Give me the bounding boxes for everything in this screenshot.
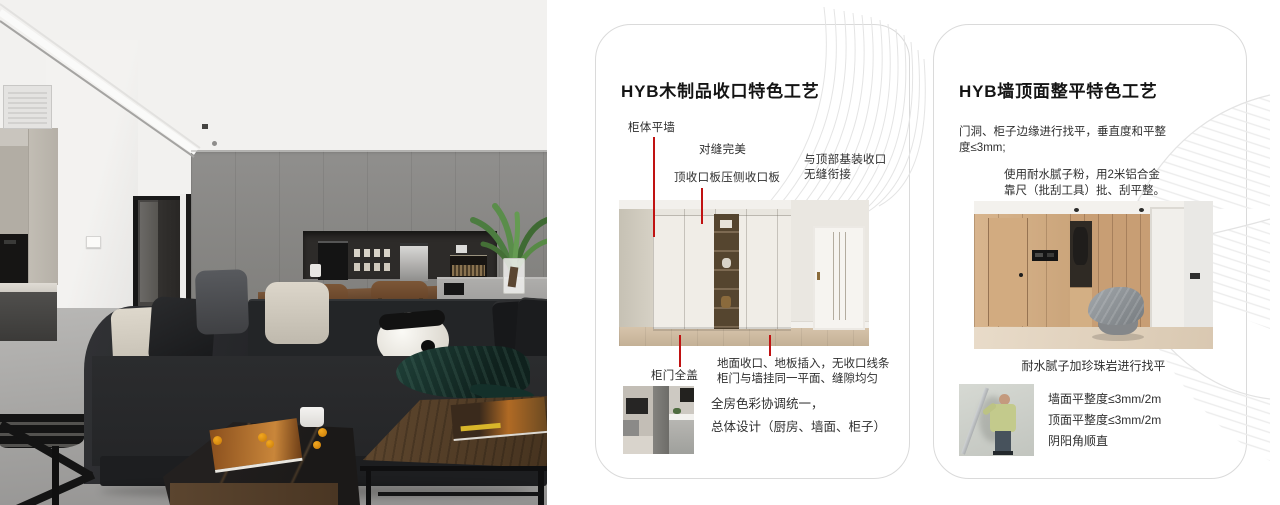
shelves [714, 214, 739, 329]
table-metal-leg [538, 468, 544, 505]
para2-line2: 靠尺（批刮工具）批、刮平整。 [1004, 183, 1165, 199]
render-wardrobe [653, 209, 791, 329]
thumb-dark-appliance [680, 388, 694, 402]
white-mug [310, 264, 321, 277]
leader-line-top-panel [701, 188, 703, 224]
door-handle-gold [817, 272, 820, 280]
callout-cabinet-flush-wall: 柜体平墙 [628, 121, 675, 136]
table-metal-leg [366, 470, 371, 505]
orange-fruit [213, 436, 222, 445]
glass-door-handle [1190, 273, 1200, 279]
open-shelf-unit [714, 214, 739, 329]
wood-wall-left [974, 214, 1070, 329]
thumb-gray-column [653, 386, 669, 454]
thumb-sofa [623, 420, 639, 436]
thumb-tv [626, 398, 648, 414]
door-handle-dot [1019, 273, 1023, 277]
card2-thumbnail-photo [959, 384, 1034, 456]
light-switch [86, 236, 101, 248]
ceiling-vent [3, 85, 52, 129]
callout-full-overlay-door: 柜门全盖 [651, 369, 698, 384]
orange-fruit [258, 433, 267, 442]
note-floor-closeout: 地面收口、地板插入，无收口线条 柜门与墙挂同一平面、缝隙均匀 [717, 357, 890, 387]
orange-fruit [313, 441, 321, 449]
white-door [1150, 207, 1188, 341]
built-in-coffee-machine [0, 234, 28, 290]
stool-leg-vertical [52, 446, 59, 505]
plant-vase [503, 258, 525, 294]
leader-line-cabinet-wall [653, 137, 655, 237]
card2-title: HYB墙顶面整平特色工艺 [959, 77, 1158, 102]
cup-shelf-bottom [354, 263, 390, 271]
ceiling-sensor [202, 124, 208, 129]
orange-fruit [266, 440, 274, 448]
spec-list: 墙面平整度≤3mm/2m 顶面平整度≤3mm/2m 阴阳角顺直 [1048, 389, 1161, 452]
shelf-bottle [721, 296, 731, 308]
leader-line-floor-closeout [769, 335, 771, 356]
open-shelf-niche [1070, 221, 1092, 287]
render-left-wall [619, 209, 653, 329]
marble-table-base [170, 483, 338, 505]
espresso-machine-chrome [400, 243, 428, 281]
spec-corner-straightness: 阴阳角顺直 [1048, 431, 1161, 452]
photo-caption: 耐水腻子加珍珠岩进行找平 [974, 359, 1213, 374]
callout-top-closeout-panel: 顶收口板压侧收口板 [674, 171, 780, 186]
spec-wall-flatness: 墙面平整度≤3mm/2m [1048, 389, 1161, 410]
hanging-clothes [1073, 227, 1088, 265]
table-metal-bar [360, 466, 547, 471]
plant-stems [508, 267, 519, 288]
photo-downlight [1074, 208, 1079, 212]
callout-ceiling-joint-line2: 无缝衔接 [804, 168, 887, 183]
cup-shelf-top [354, 249, 390, 257]
note-line2: 柜门与墙挂同一平面、缝隙均匀 [717, 372, 890, 387]
para2-line1: 使用耐水腻子粉，用2米铝合金 [1004, 167, 1165, 183]
callout-perfect-seam: 对缝完美 [699, 143, 746, 158]
table-metal-lowbar [378, 492, 540, 496]
para-putty-tools: 使用耐水腻子粉，用2米铝合金 靠尺（批刮工具）批、刮平整。 [1004, 167, 1165, 199]
door-stripes [833, 232, 849, 320]
sofa-pillow-cream-2 [265, 282, 329, 344]
thumb-floor [623, 436, 653, 454]
leader-line-full-overlay [679, 335, 681, 367]
summary-line1: 全房色彩协调统一， [711, 395, 886, 413]
vent-grille [8, 90, 47, 124]
callout-ceiling-joint: 与顶部基装收口 无缝衔接 [804, 153, 887, 183]
para1-line1: 门洞、柜子边缘进行找平，垂直度和平整 [959, 124, 1166, 140]
living-room-photo [0, 0, 547, 505]
doorway-interior [140, 202, 160, 302]
card1-thumbnail-photo [623, 386, 694, 454]
card-wood-closeout: HYB木制品收口特色工艺 柜体平墙 对缝完美 顶收口板压侧收口板 与顶部基装收口… [595, 24, 910, 479]
potted-plant [455, 190, 547, 290]
summary-text: 全房色彩协调统一， 总体设计（厨房、墙面、柜子） [711, 395, 886, 436]
door-frame-left [133, 196, 138, 308]
callout-ceiling-joint-line1: 与顶部基装收口 [804, 153, 887, 168]
worker-pants [995, 431, 1011, 453]
note-line1: 地面收口、地板插入，无收口线条 [717, 357, 890, 372]
white-cup [300, 407, 324, 427]
sofa-pillow-gray [195, 269, 249, 335]
card1-render-photo [619, 200, 869, 346]
shelf-decor-item [720, 220, 732, 228]
panel-screen [1035, 253, 1043, 257]
card2-photo [974, 201, 1213, 349]
orange-fruit [318, 428, 327, 437]
para1-line2: 度≤3mm; [959, 140, 1166, 156]
wardrobe-floor-shadow [653, 327, 791, 331]
card1-title: HYB木制品收口特色工艺 [621, 77, 820, 102]
para-door-leveling: 门洞、柜子边缘进行找平，垂直度和平整 度≤3mm; [959, 124, 1166, 156]
render-door [813, 226, 865, 330]
shelf-vase [722, 258, 731, 268]
spec-ceiling-flatness: 顶面平整度≤3mm/2m [1048, 410, 1161, 431]
ceiling-lines [0, 0, 547, 170]
espresso-machine-black [318, 241, 348, 280]
summary-line2: 总体设计（厨房、墙面、柜子） [711, 418, 886, 436]
kitchen-counter [0, 283, 57, 292]
magazine-title-bar [460, 423, 500, 431]
kitchen-lower-cabinet [0, 292, 57, 341]
dining-chair [371, 281, 428, 298]
panel-buttons [1047, 253, 1054, 257]
page: HYB木制品收口特色工艺 柜体平墙 对缝完美 顶收口板压侧收口板 与顶部基装收口… [0, 0, 1280, 505]
downlight [212, 141, 217, 146]
photo-downlight [1139, 208, 1144, 212]
worker-shoes [993, 451, 1013, 455]
card-wall-leveling: HYB墙顶面整平特色工艺 门洞、柜子边缘进行找平，垂直度和平整 度≤3mm; 使… [933, 24, 1247, 479]
smart-panel [1032, 250, 1058, 261]
thumb-lower-cabinet [669, 420, 694, 454]
hidden-door [988, 218, 1028, 326]
appliance-display [4, 240, 16, 244]
